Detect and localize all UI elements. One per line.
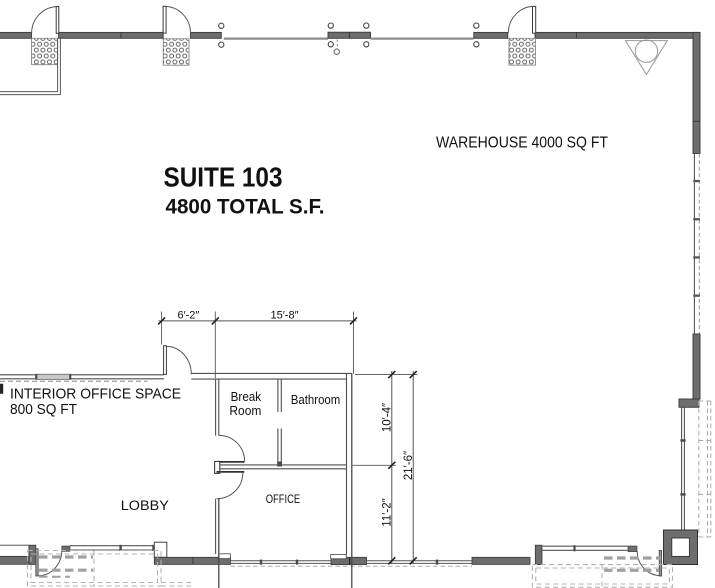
- svg-text:OFFICE: OFFICE: [266, 494, 301, 506]
- svg-text:Break: Break: [231, 390, 262, 404]
- svg-text:21′-6″: 21′-6″: [403, 451, 415, 480]
- svg-text:WAREHOUSE 4000 SQ FT: WAREHOUSE 4000 SQ FT: [436, 135, 608, 152]
- svg-text:11′-2″: 11′-2″: [381, 498, 393, 526]
- svg-text:Bathroom: Bathroom: [291, 392, 341, 407]
- svg-text:INTERIOR OFFICE SPACE: INTERIOR OFFICE SPACE: [10, 387, 181, 403]
- svg-text:6′-2″: 6′-2″: [177, 310, 199, 322]
- svg-text:LOBBY: LOBBY: [121, 498, 169, 513]
- svg-text:15′-8″: 15′-8″: [271, 310, 299, 322]
- svg-text:SUITE 103: SUITE 103: [164, 162, 283, 193]
- svg-text:Room: Room: [229, 404, 261, 418]
- svg-text:4800 TOTAL S.F.: 4800 TOTAL S.F.: [166, 196, 325, 219]
- svg-text:800 SQ FT: 800 SQ FT: [10, 402, 77, 418]
- svg-text:10′-4″: 10′-4″: [381, 403, 393, 432]
